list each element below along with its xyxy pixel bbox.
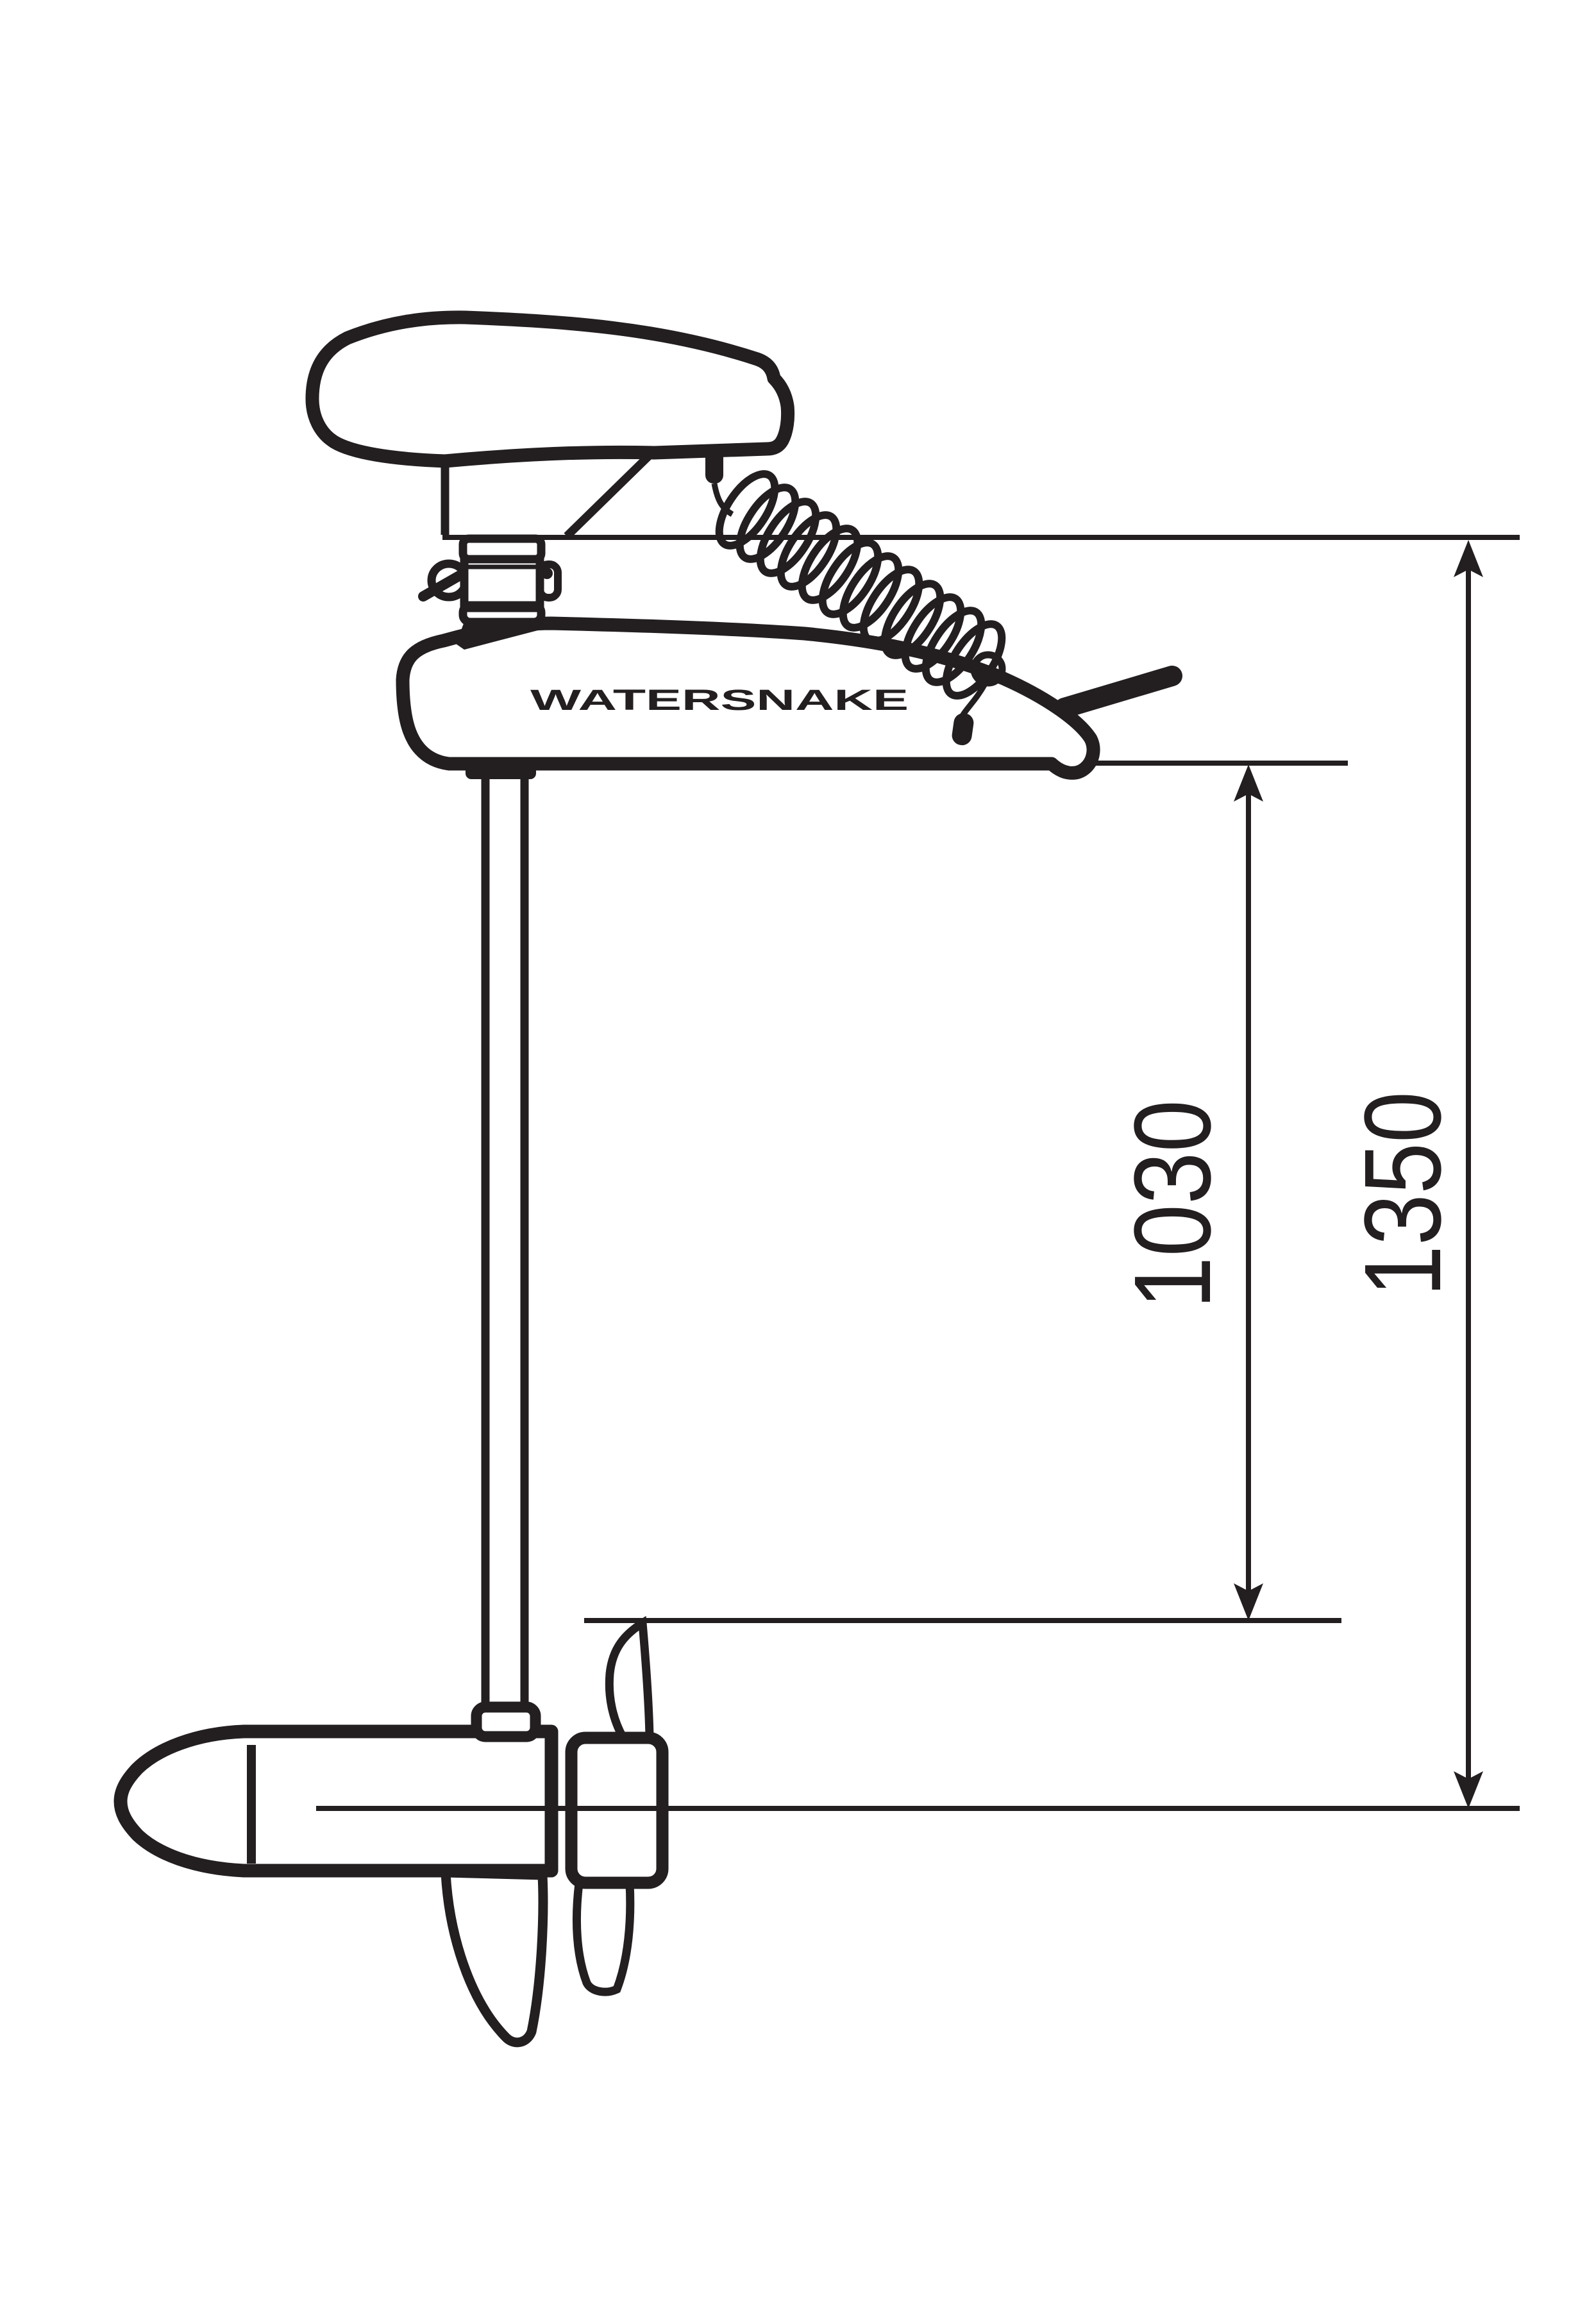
lower-unit-group [121, 1623, 1520, 2042]
dimension-label-1350: 1350 [1342, 1091, 1464, 1297]
transom-clamp [423, 539, 558, 622]
motor-body-group: WATERSNAKE [403, 617, 1172, 779]
shaft-collar [476, 1707, 535, 1737]
drawing-sheet: 1030 1350 WATERSNAKE [0, 0, 1596, 2299]
propeller-blade-front [446, 1873, 543, 2042]
dimension-label-1030: 1030 [1112, 1100, 1234, 1309]
dimension-1350: 1350 [1342, 540, 1483, 1808]
head-column-rear-edge [567, 453, 651, 536]
dimension-1030: 1030 [1112, 764, 1263, 1621]
cable-connector-stem [705, 449, 723, 484]
motor-shaft [485, 768, 525, 1711]
control-head-outline [312, 317, 788, 461]
propeller-blade-upper [609, 1623, 650, 1738]
control-head-group [312, 317, 788, 622]
propeller-blade-lower [576, 1883, 630, 1992]
steering-handle [1064, 676, 1172, 708]
trolling-motor-technical-drawing: 1030 1350 WATERSNAKE [0, 0, 1596, 2299]
brand-logo-text: WATERSNAKE [530, 684, 909, 716]
torpedo-housing [121, 1731, 551, 1871]
